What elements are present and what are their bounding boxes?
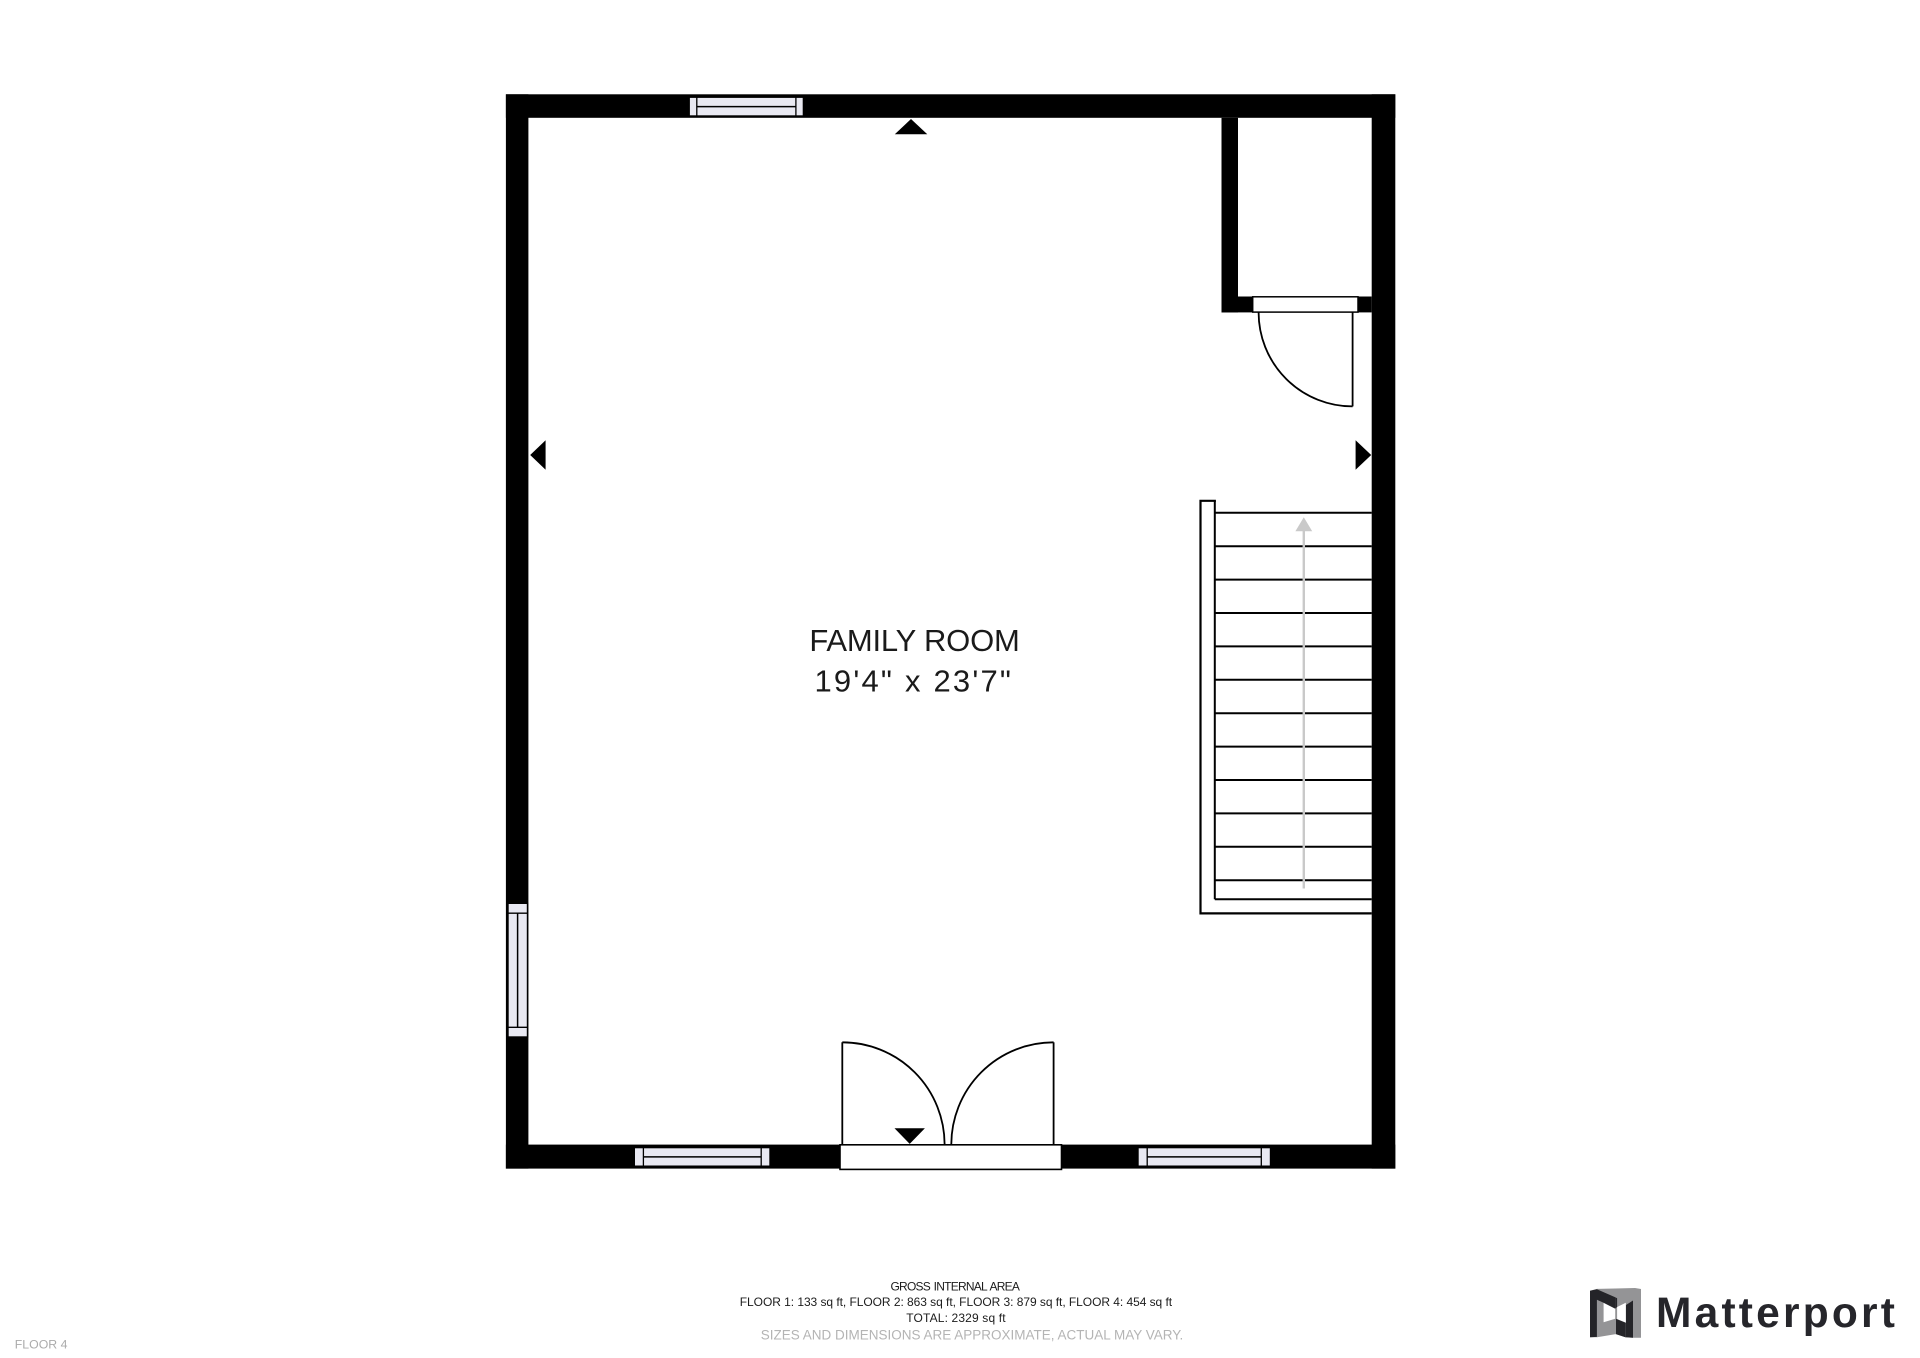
svg-text:Matterport: Matterport — [1656, 1290, 1898, 1337]
svg-text:GROSS INTERNAL AREA: GROSS INTERNAL AREA — [890, 1279, 1019, 1293]
svg-text:TOTAL: 2329 sq ft: TOTAL: 2329 sq ft — [906, 1311, 1006, 1325]
svg-text:FLOOR 4: FLOOR 4 — [15, 1337, 68, 1351]
svg-text:FLOOR 1: 133 sq ft, FLOOR 2: 8: FLOOR 1: 133 sq ft, FLOOR 2: 863 sq ft, … — [740, 1295, 1173, 1309]
svg-text:19'4" x 23'7": 19'4" x 23'7" — [814, 664, 1013, 699]
svg-text:FAMILY ROOM: FAMILY ROOM — [809, 623, 1019, 658]
svg-text:SIZES AND DIMENSIONS ARE APPRO: SIZES AND DIMENSIONS ARE APPROXIMATE, AC… — [761, 1327, 1184, 1342]
